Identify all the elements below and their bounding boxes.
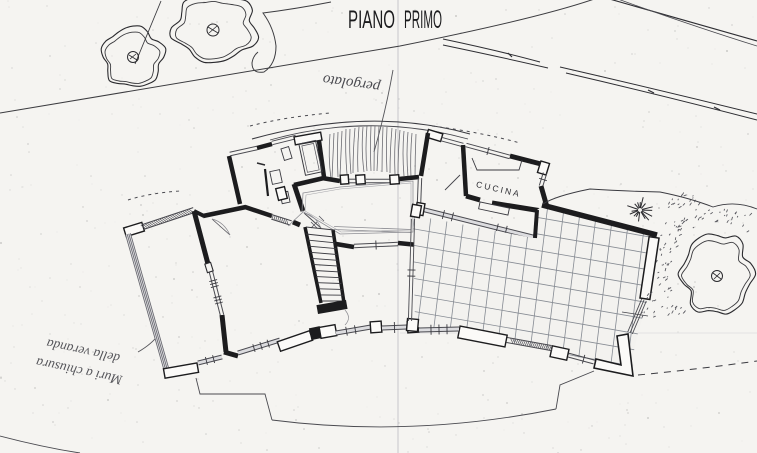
svg-text:PRIMO: PRIMO xyxy=(404,6,442,34)
svg-text:PIANO: PIANO xyxy=(348,6,395,34)
